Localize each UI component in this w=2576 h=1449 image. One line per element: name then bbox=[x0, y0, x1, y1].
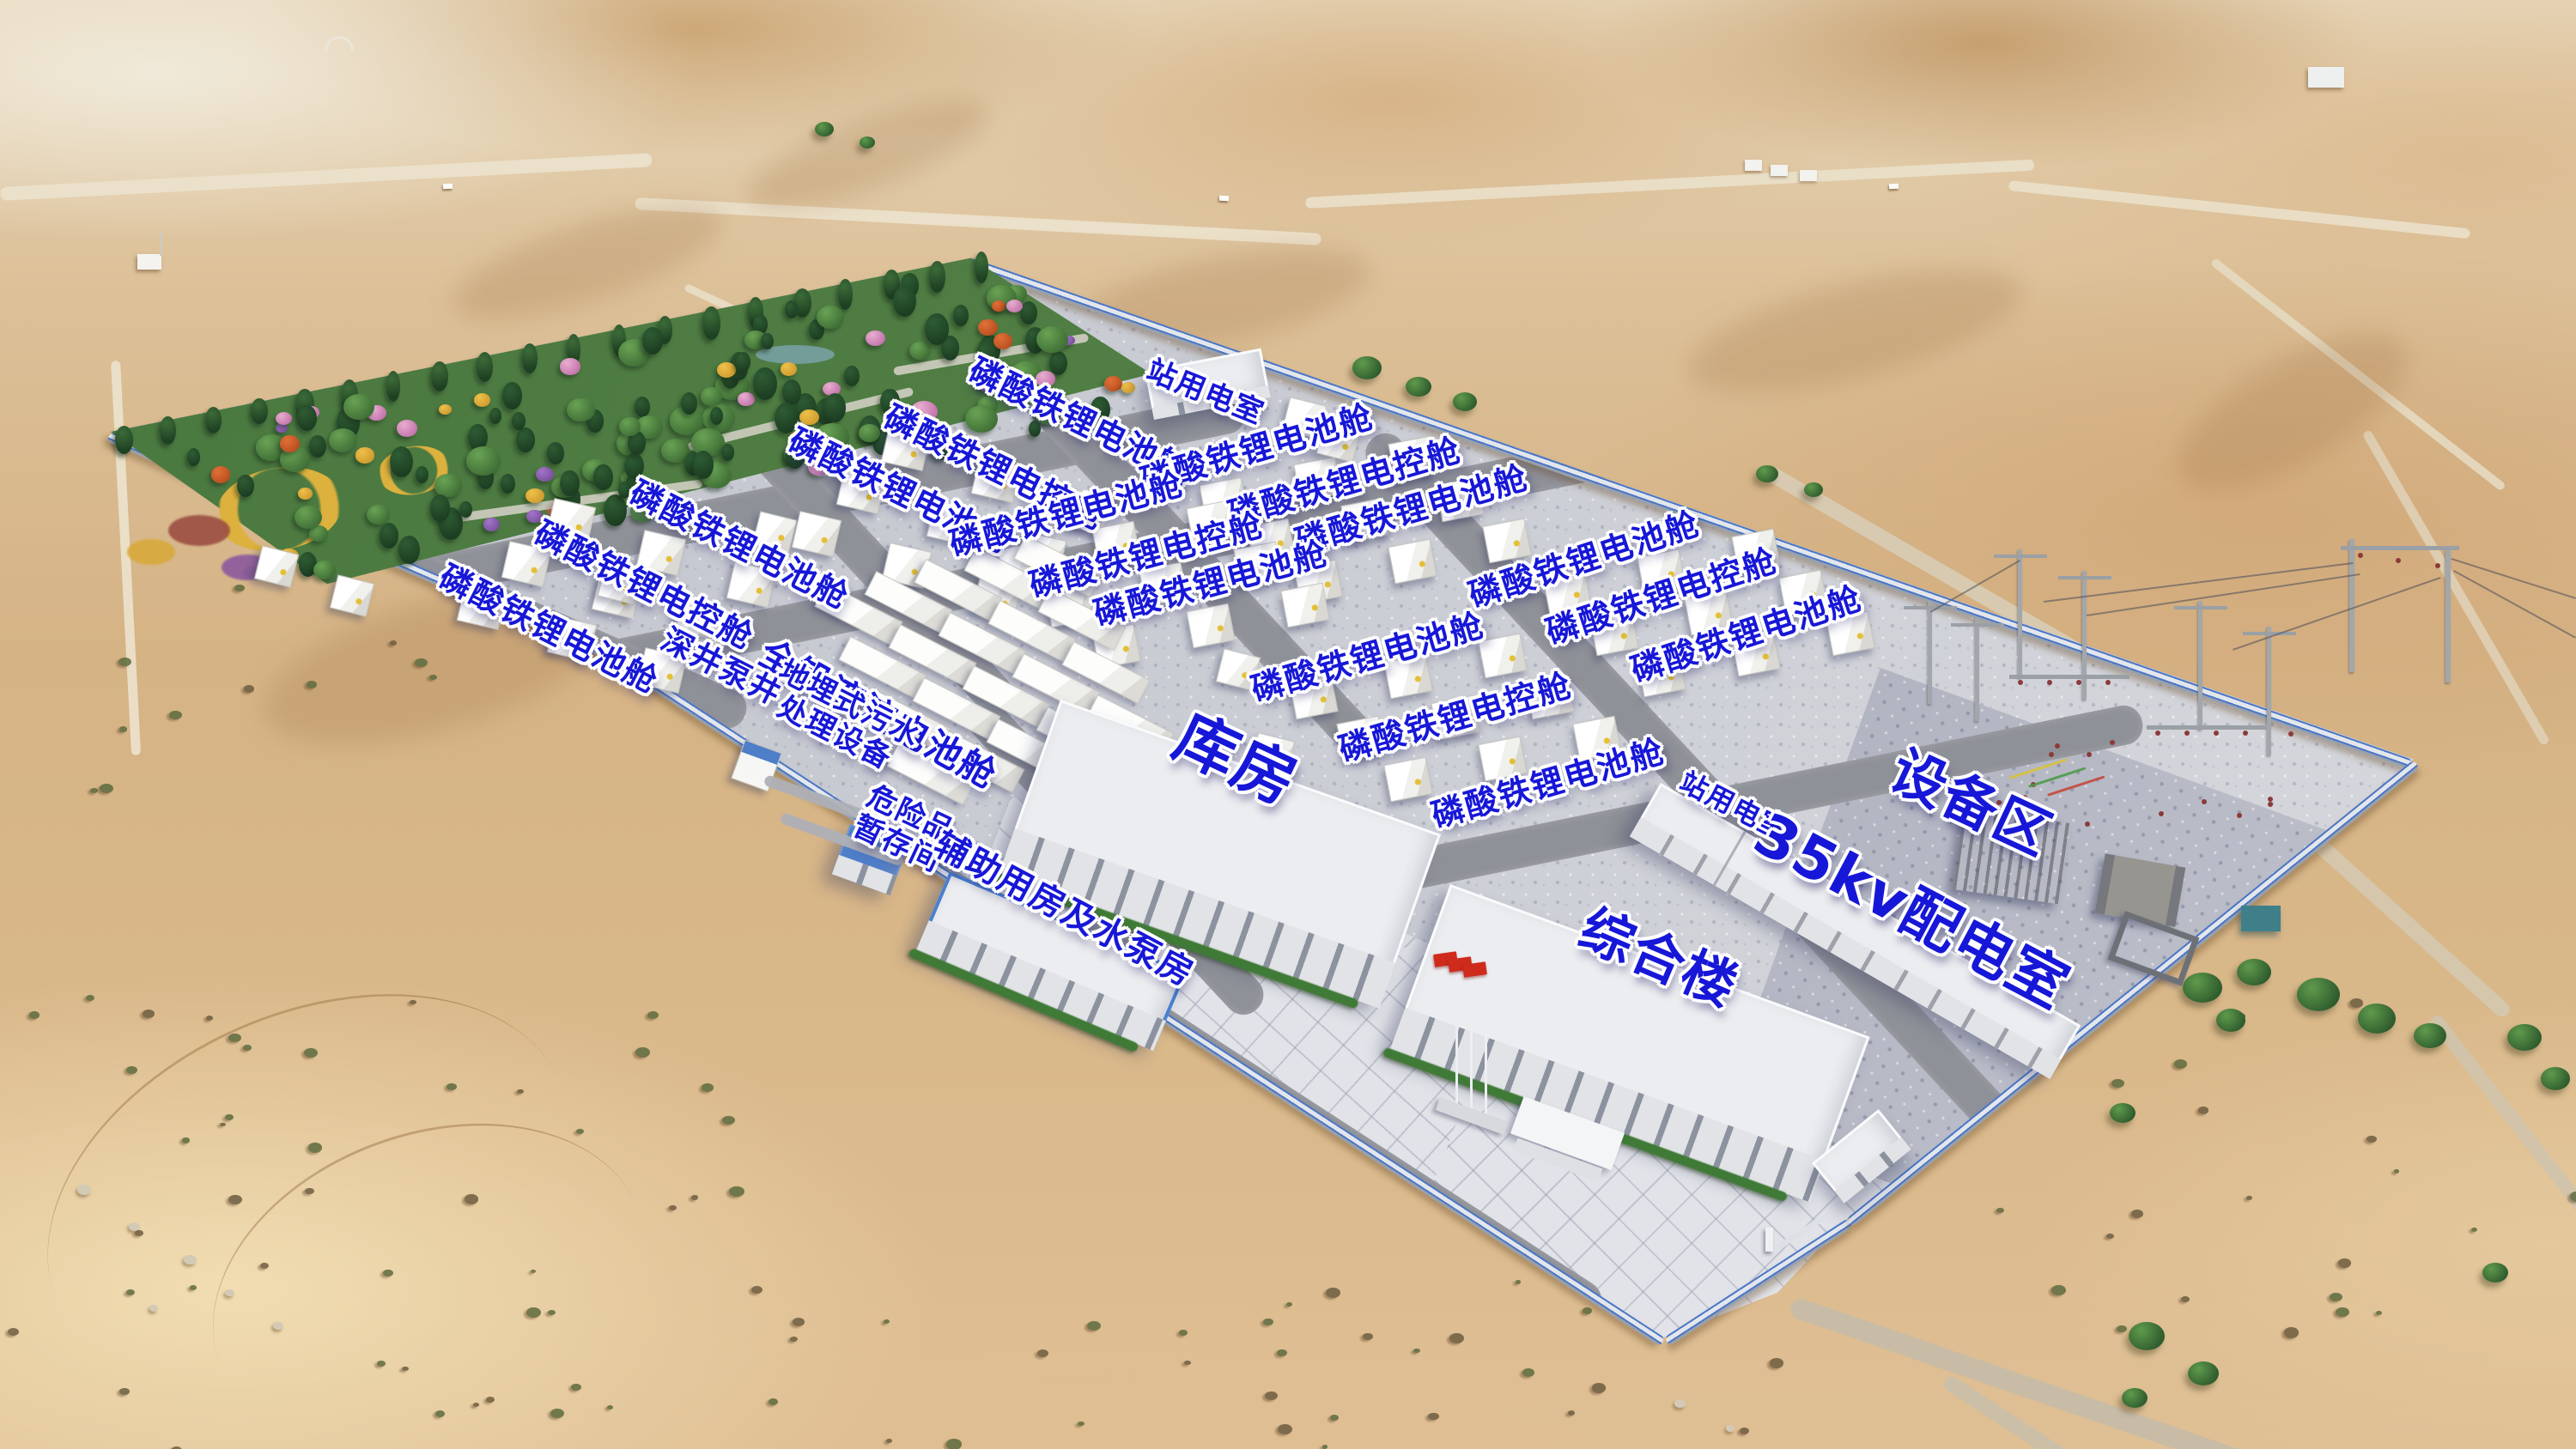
aerial-site-rendering: 站用电室磷酸铁锂电池舱磷酸铁锂电控舱磷酸铁锂电池舱磷酸铁锂电池舱磷酸铁锂电控舱磷… bbox=[0, 0, 2576, 1449]
area-label-auxiliary-pump-house: 辅助用房及水泵房 bbox=[927, 825, 1200, 994]
area-label-office-building: 综合楼 bbox=[1571, 898, 1747, 1017]
area-label-lfp-battery-cabin-10: 磷酸铁锂电池舱 bbox=[1428, 733, 1669, 834]
labels-layer: 站用电室磷酸铁锂电池舱磷酸铁锂电控舱磷酸铁锂电池舱磷酸铁锂电池舱磷酸铁锂电控舱磷… bbox=[0, 0, 2576, 1449]
area-label-equipment-area: 设备区 bbox=[1880, 741, 2061, 869]
area-label-lfp-battery-cabin-9: 磷酸铁锂电池舱 bbox=[1248, 607, 1489, 708]
area-label-lfp-control-cabin-5: 磷酸铁锂电控舱 bbox=[1335, 667, 1577, 768]
area-label-warehouse: 库房 bbox=[1164, 701, 1309, 818]
area-label-station-power-room-north: 站用电室 bbox=[1142, 355, 1269, 431]
